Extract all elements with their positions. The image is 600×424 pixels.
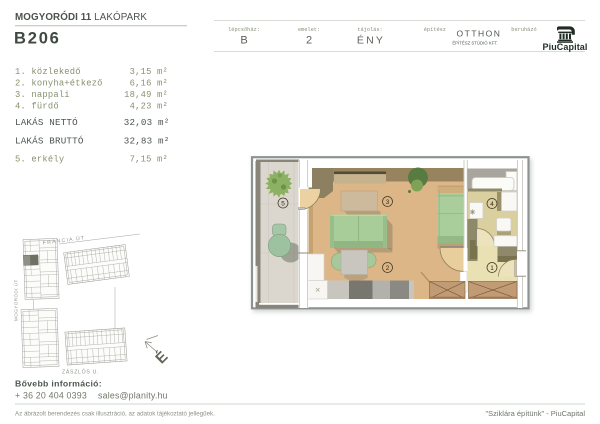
svg-text:beruházó: beruházó — [511, 27, 536, 33]
svg-text:Az ábrázolt berendezés csak il: Az ábrázolt berendezés csak illusztráció… — [15, 411, 215, 418]
svg-text:4: 4 — [490, 201, 494, 208]
svg-text:32,03 m²: 32,03 m² — [124, 117, 170, 128]
svg-text:B: B — [240, 35, 247, 47]
svg-text:6,16 m²: 6,16 m² — [130, 79, 168, 89]
svg-text:Bővebb információ:: Bővebb információ: — [15, 379, 102, 389]
svg-text:sales@planity.hu: sales@planity.hu — [98, 391, 168, 401]
svg-text:lépcsőház:: lépcsőház: — [228, 27, 260, 33]
svg-text:2. konyha+étkező: 2. konyha+étkező — [15, 79, 103, 89]
svg-text:5. erkély: 5. erkély — [15, 155, 64, 165]
svg-text:4,23 m²: 4,23 m² — [130, 102, 168, 112]
svg-text:2: 2 — [386, 265, 390, 272]
svg-text:tájolás:: tájolás: — [357, 27, 382, 33]
svg-text:2: 2 — [306, 35, 312, 47]
svg-text:építész: építész — [424, 27, 446, 33]
svg-text:emelet:: emelet: — [298, 27, 320, 33]
svg-text:3: 3 — [386, 199, 390, 206]
svg-text:5: 5 — [281, 201, 285, 208]
svg-text:1: 1 — [490, 265, 494, 272]
svg-text:MOGYORÓDI ÚT: MOGYORÓDI ÚT — [13, 279, 19, 321]
svg-text:+ 36 20 404 0393: + 36 20 404 0393 — [15, 391, 87, 401]
svg-text:32,83 m²: 32,83 m² — [124, 136, 170, 147]
svg-text:18,49 m²: 18,49 m² — [124, 90, 168, 100]
svg-text:LAKÁS BRUTTÓ: LAKÁS BRUTTÓ — [15, 136, 84, 147]
svg-text:3. nappali: 3. nappali — [15, 90, 70, 100]
svg-text:B206: B206 — [14, 30, 61, 48]
svg-text:ÉNY: ÉNY — [357, 34, 385, 47]
svg-text:PiuCapital: PiuCapital — [542, 42, 587, 52]
svg-text:ÉPÍTÉSZ STÚDIÓ KFT.: ÉPÍTÉSZ STÚDIÓ KFT. — [452, 40, 497, 45]
svg-text:3,15 m²: 3,15 m² — [130, 67, 168, 77]
svg-text:7,15 m²: 7,15 m² — [130, 155, 168, 165]
svg-text:ZÁSZLÓS U.: ZÁSZLÓS U. — [62, 369, 99, 376]
svg-text:LAKÁS NETTÓ: LAKÁS NETTÓ — [15, 117, 78, 128]
svg-text:OTTHON: OTTHON — [457, 29, 502, 39]
svg-text:MOGYORÓDI 11 LAKÓPARK: MOGYORÓDI 11 LAKÓPARK — [15, 11, 147, 23]
svg-text:4. fürdő: 4. fürdő — [15, 102, 59, 112]
svg-text:"Sziklára építünk" - PiuCapita: "Sziklára építünk" - PiuCapital — [485, 409, 585, 418]
svg-text:1. közlekedő: 1. közlekedő — [15, 67, 81, 77]
